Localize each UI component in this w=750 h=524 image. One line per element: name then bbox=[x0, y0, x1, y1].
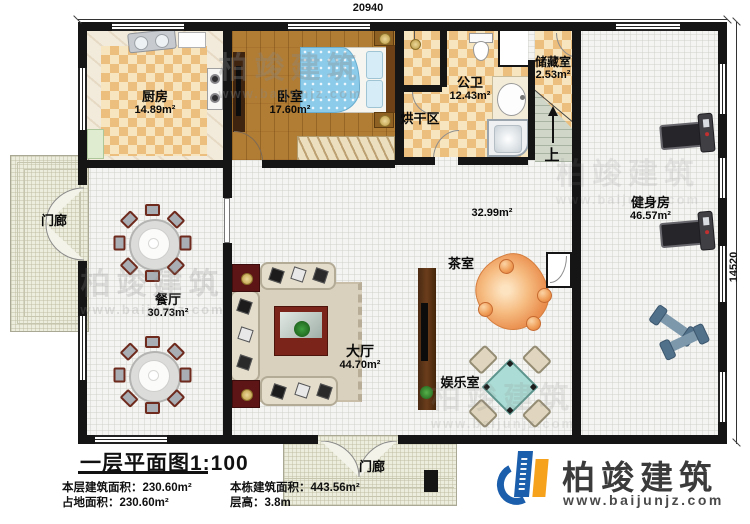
lamp-icon bbox=[241, 389, 253, 401]
window bbox=[78, 68, 87, 130]
room-area: 14.89m² bbox=[115, 104, 195, 116]
logo-windows bbox=[518, 455, 527, 493]
room-area: 30.73m² bbox=[142, 307, 194, 319]
side-table bbox=[232, 264, 260, 292]
room-label-hall: 大厅 44.70m² bbox=[330, 344, 390, 371]
room-area: 12.43m² bbox=[430, 90, 510, 102]
porch-column bbox=[424, 470, 438, 492]
window bbox=[718, 246, 727, 302]
room-label-tea: 茶室 bbox=[436, 257, 486, 271]
treadmill-screen bbox=[703, 119, 710, 127]
sofa bbox=[230, 290, 260, 382]
treadmill-belt bbox=[659, 122, 703, 151]
window bbox=[718, 64, 727, 114]
wall bbox=[223, 243, 232, 435]
chair bbox=[114, 368, 126, 383]
faucet-icon bbox=[520, 95, 525, 100]
floor-plan: 20940 14520 bbox=[0, 0, 750, 524]
dining-table bbox=[121, 343, 185, 407]
corridor-area-label: 32.99m² bbox=[462, 207, 522, 219]
chair bbox=[180, 368, 192, 383]
stairs-arrow bbox=[552, 115, 554, 143]
nightstand bbox=[374, 30, 394, 46]
pillow bbox=[290, 266, 306, 282]
stat-value: 443.56m² bbox=[311, 482, 360, 494]
pillow bbox=[366, 80, 383, 108]
stat-value: 230.60m² bbox=[143, 482, 192, 494]
room-label-porch-bottom: 门廊 bbox=[346, 460, 398, 474]
pillow bbox=[294, 382, 310, 398]
stat-label: 本层建筑面积： bbox=[62, 482, 143, 494]
room-label-entertainment: 娱乐室 bbox=[432, 376, 488, 390]
wall bbox=[572, 31, 581, 435]
pillow bbox=[312, 267, 328, 283]
tv-icon bbox=[236, 66, 241, 116]
room-label-storage: 储藏室 2.53m² bbox=[525, 56, 581, 81]
company-website: www.baijunjz.com bbox=[563, 492, 724, 508]
table-center bbox=[148, 370, 159, 381]
bedroom-tv-cabinet bbox=[233, 52, 245, 132]
wall bbox=[395, 31, 404, 160]
dimension-width-label: 20940 bbox=[338, 2, 398, 15]
treadmill bbox=[656, 108, 716, 161]
window bbox=[112, 22, 184, 31]
tv-icon bbox=[421, 303, 428, 361]
room-label-bedroom: 卧室 17.60m² bbox=[250, 90, 330, 116]
stairs-label: 上 bbox=[542, 148, 562, 165]
room-area: 46.57m² bbox=[608, 210, 693, 222]
room-label-kitchen: 厨房 14.89m² bbox=[115, 90, 195, 116]
treadmill-belt bbox=[659, 220, 703, 249]
room-name: 厨房 bbox=[142, 89, 168, 104]
room-name: 门廊 bbox=[359, 459, 385, 474]
logo-building-orange-icon bbox=[532, 459, 548, 497]
fireplace-niche bbox=[546, 252, 572, 288]
wall bbox=[223, 31, 232, 198]
company-logo bbox=[497, 449, 555, 511]
window bbox=[718, 158, 727, 198]
headboard bbox=[386, 45, 395, 113]
window bbox=[288, 22, 370, 31]
room-label-porch-left: 门廊 bbox=[28, 214, 80, 228]
stat-label: 占地面积： bbox=[62, 497, 120, 509]
room-label-drying: 烘干区 bbox=[396, 112, 444, 126]
shower bbox=[487, 119, 529, 157]
niche-arc bbox=[550, 256, 567, 283]
wall bbox=[395, 157, 435, 165]
window bbox=[78, 316, 87, 380]
tea-stool bbox=[526, 316, 541, 331]
window bbox=[616, 22, 680, 31]
sofa bbox=[260, 262, 336, 290]
lamp-icon bbox=[379, 115, 391, 127]
room-name: 烘干区 bbox=[400, 111, 439, 126]
wall bbox=[262, 160, 395, 168]
dimension-width-line bbox=[78, 19, 728, 20]
pillow bbox=[236, 298, 252, 314]
pillow bbox=[268, 267, 284, 283]
sofa-chaise bbox=[260, 376, 338, 406]
stat-label: 本栋建筑面积： bbox=[230, 482, 311, 494]
wardrobe bbox=[297, 136, 395, 162]
coffee-table bbox=[274, 306, 328, 356]
room-area: 32.99m² bbox=[472, 207, 513, 219]
room-label-gym: 健身房 46.57m² bbox=[608, 196, 693, 222]
stairs-up: 上 bbox=[544, 147, 559, 164]
wall bbox=[458, 157, 528, 165]
kitchen-cabinet bbox=[87, 129, 104, 159]
dining-table bbox=[121, 211, 185, 275]
burner bbox=[210, 93, 220, 103]
mahjong-set bbox=[480, 357, 540, 417]
chair bbox=[145, 204, 160, 216]
sink-bowl bbox=[133, 35, 148, 50]
pillow bbox=[270, 383, 286, 399]
treadmill-screen bbox=[703, 217, 710, 225]
stat-building-area: 本栋建筑面积：443.56m² bbox=[230, 479, 360, 495]
room-name: 门廊 bbox=[41, 213, 67, 228]
pillow bbox=[236, 354, 252, 370]
room-name: 储藏室 bbox=[535, 55, 571, 69]
title-underline bbox=[78, 471, 208, 474]
burner bbox=[210, 74, 220, 84]
table-corner bbox=[530, 383, 537, 390]
window bbox=[95, 435, 167, 444]
room-area: 17.60m² bbox=[250, 104, 330, 116]
ceiling-lamp-icon bbox=[410, 39, 421, 50]
stat-label: 层高： bbox=[230, 497, 265, 509]
pillow bbox=[316, 383, 332, 399]
window bbox=[718, 372, 727, 422]
stat-value: 230.60m² bbox=[120, 497, 169, 509]
room-name: 娱乐室 bbox=[440, 375, 479, 390]
room-name: 餐厅 bbox=[155, 292, 181, 307]
room-label-bathroom: 公卫 12.43m² bbox=[430, 76, 510, 102]
lamp-icon bbox=[241, 273, 253, 285]
table-center bbox=[148, 238, 159, 249]
dimension-height-label: 14520 bbox=[728, 237, 742, 297]
stat-value: 3.8m bbox=[265, 497, 291, 509]
glass-partition bbox=[224, 198, 230, 243]
chair bbox=[145, 270, 160, 282]
tea-stool bbox=[478, 302, 493, 317]
chair bbox=[145, 336, 160, 348]
table-corner bbox=[506, 407, 513, 414]
side-table bbox=[232, 380, 260, 408]
room-name: 卧室 bbox=[277, 89, 303, 104]
stairs-arrow-head bbox=[548, 106, 558, 116]
tea-stool bbox=[537, 288, 552, 303]
bath-niche bbox=[498, 31, 528, 67]
shower-tray bbox=[494, 125, 522, 153]
room-area: 2.53m² bbox=[525, 69, 581, 81]
room-name: 大厅 bbox=[346, 343, 374, 359]
lamp-icon bbox=[379, 33, 391, 45]
nightstand bbox=[374, 112, 394, 128]
plant-icon bbox=[294, 321, 310, 337]
room-name: 健身房 bbox=[631, 195, 670, 210]
stat-floor-height: 层高：3.8m bbox=[230, 494, 291, 510]
room-name: 茶室 bbox=[448, 256, 474, 271]
porch-bottom-step bbox=[284, 496, 454, 497]
tea-stool bbox=[499, 259, 514, 274]
pillow bbox=[237, 326, 253, 342]
room-name: 公卫 bbox=[457, 75, 483, 90]
table-corner bbox=[506, 360, 513, 367]
stat-footprint: 占地面积：230.60m² bbox=[62, 494, 169, 510]
chair bbox=[145, 402, 160, 414]
refrigerator bbox=[178, 32, 206, 48]
wall bbox=[87, 160, 223, 168]
chair bbox=[180, 236, 192, 251]
room-label-dining: 餐厅 30.73m² bbox=[142, 293, 194, 319]
chair bbox=[114, 236, 126, 251]
stove bbox=[207, 68, 223, 110]
pillow bbox=[366, 51, 383, 79]
dimension-height-line bbox=[736, 22, 737, 444]
sink-bowl bbox=[154, 33, 169, 48]
wall bbox=[398, 435, 727, 444]
room-area: 44.70m² bbox=[330, 359, 390, 371]
stat-floor-area: 本层建筑面积：230.60m² bbox=[62, 479, 192, 495]
